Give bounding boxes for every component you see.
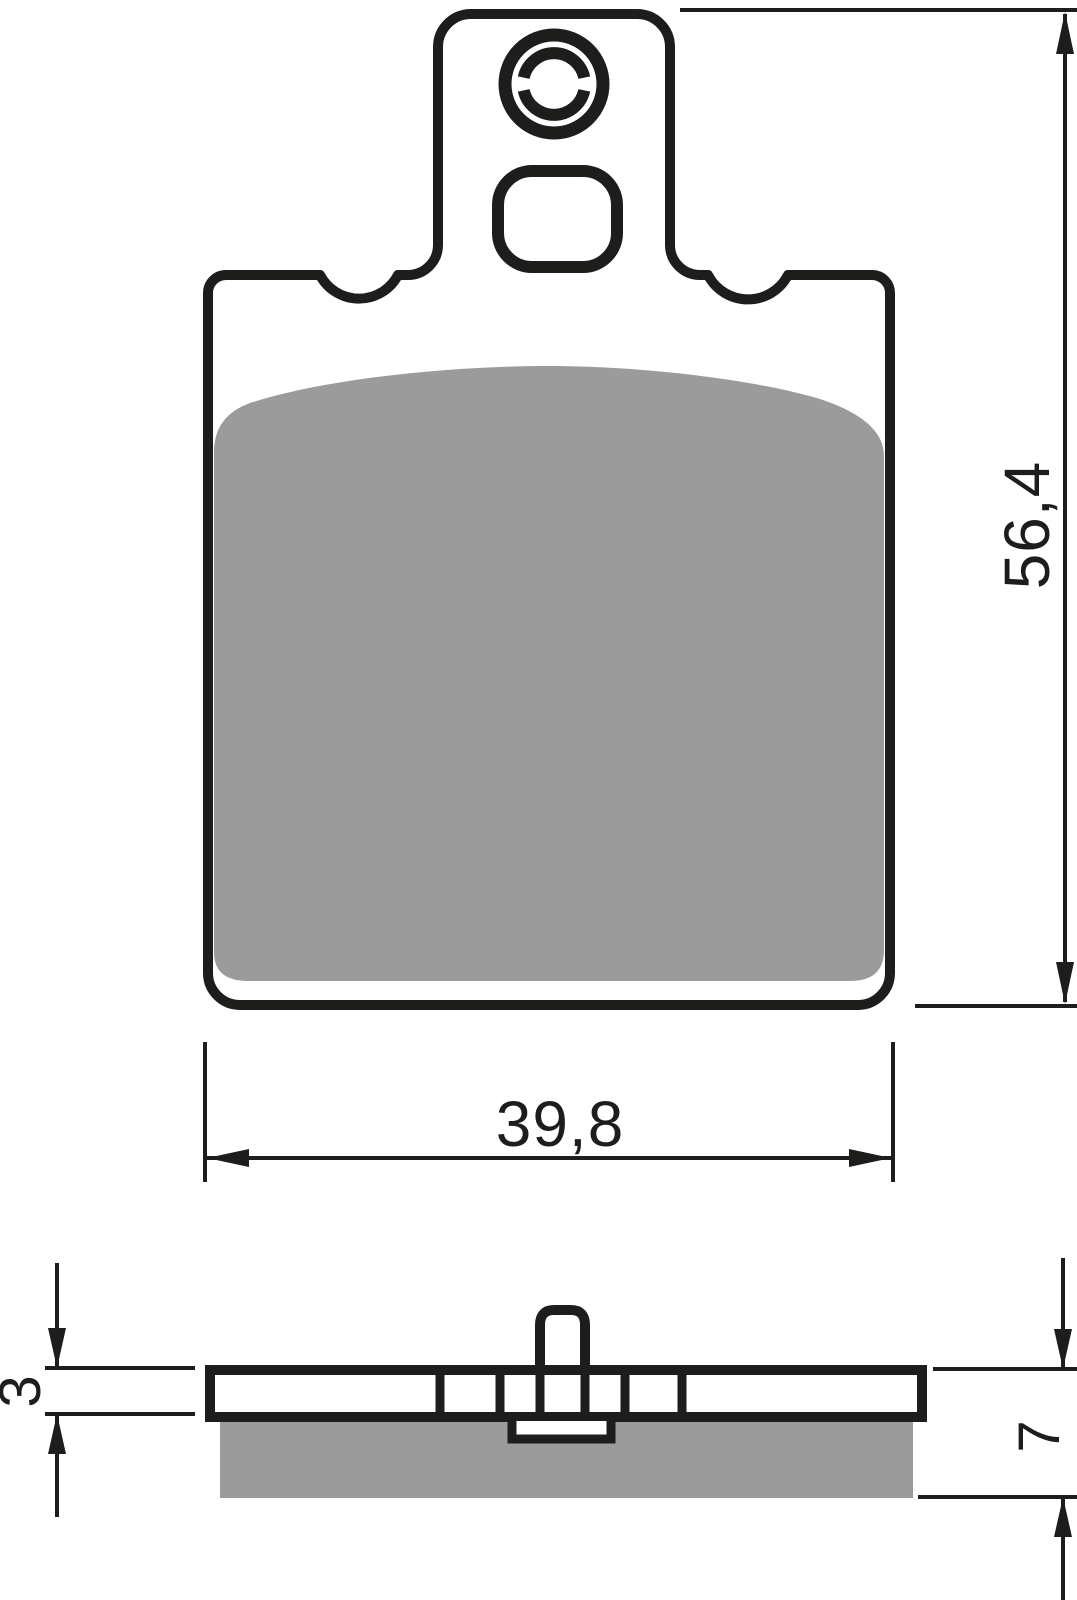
- backplate-side: [210, 1370, 922, 1417]
- side-view: [210, 1310, 922, 1498]
- width-arrowhead-left: [207, 1149, 249, 1167]
- backplate-arrowhead-up: [48, 1414, 66, 1454]
- drawing-linework: [0, 0, 1077, 1600]
- friction-notch: [512, 1421, 611, 1439]
- total-arrowhead-up: [1054, 1497, 1072, 1537]
- width-arrowhead-right: [849, 1149, 891, 1167]
- height-arrowhead-bottom: [1056, 962, 1074, 1004]
- total-arrowhead-down: [1054, 1329, 1072, 1369]
- total-thickness-value: 7: [1011, 1419, 1069, 1452]
- height-dimension-value: 56,4: [995, 461, 1059, 590]
- backplate-pin-nub: [540, 1310, 585, 1374]
- backplate-thickness-value: 3: [0, 1374, 50, 1407]
- dimension-backplate-thickness: [45, 1263, 195, 1517]
- brake-pad-technical-drawing: 56,4 39,8 3 7: [0, 0, 1077, 1600]
- square-mounting-hole: [498, 171, 617, 267]
- backplate-arrowhead-down: [48, 1328, 66, 1368]
- width-dimension-value: 39,8: [496, 1092, 625, 1156]
- height-arrowhead-top: [1056, 12, 1074, 54]
- friction-material-front: [214, 366, 884, 981]
- front-view: [208, 14, 890, 1005]
